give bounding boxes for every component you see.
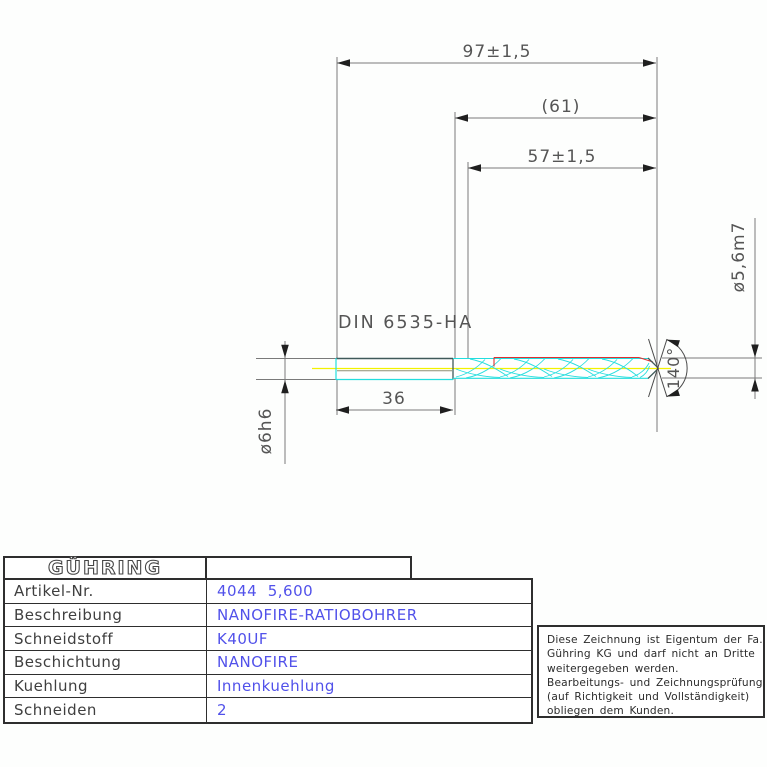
table-row: Beschichtung NANOFIRE <box>5 651 531 675</box>
row-label: Beschichtung <box>5 651 207 674</box>
drawing-page: { "drawing": { "standard_label": "DIN 65… <box>0 0 767 767</box>
title-block-header: GÜHRING <box>3 556 412 578</box>
dim-flute-length: 57±1,5 <box>528 147 597 167</box>
row-value: NANOFIRE-RATIOBOHRER <box>207 606 531 624</box>
note-line: Diese Zeichnung ist Eigentum der Fa. <box>547 633 763 647</box>
note-line: obliegen dem Kunden. <box>547 704 763 718</box>
dim-tip-diameter: ø5,6m7 <box>729 222 749 293</box>
dim-shank-length: 36 <box>382 389 406 409</box>
row-value: 4044 5,600 <box>207 582 531 600</box>
row-value: K40UF <box>207 630 531 648</box>
note-line: weitergegeben werden. <box>547 662 763 676</box>
article-table: Artikel-Nr. 4044 5,600 Beschreibung NANO… <box>3 578 533 724</box>
row-label: Schneidstoff <box>5 627 207 650</box>
table-row: Artikel-Nr. 4044 5,600 <box>5 580 531 604</box>
table-row: Beschreibung NANOFIRE-RATIOBOHRER <box>5 604 531 628</box>
table-row: Schneiden 2 <box>5 698 531 722</box>
row-value: NANOFIRE <box>207 653 531 671</box>
table-row: Schneidstoff K40UF <box>5 627 531 651</box>
brand-logo: GÜHRING <box>48 557 162 579</box>
note-line: (auf Richtigkeit und Vollständigkeit) <box>547 690 763 704</box>
note-line: Bearbeitungs- und Zeichnungsprüfung <box>547 676 763 690</box>
dim-ref-length: (61) <box>542 97 581 117</box>
table-row: Kuehlung Innenkuehlung <box>5 675 531 699</box>
row-value: 2 <box>207 701 531 719</box>
row-value: Innenkuehlung <box>207 677 531 695</box>
dim-point-angle: 140° <box>664 347 683 390</box>
ownership-note-box: Diese Zeichnung ist Eigentum der Fa. Güh… <box>537 625 765 718</box>
brand-empty-cell <box>207 558 410 578</box>
dim-overall-length: 97±1,5 <box>463 42 532 62</box>
brand-cell: GÜHRING <box>5 558 207 578</box>
row-label: Kuehlung <box>5 675 207 698</box>
row-label: Schneiden <box>5 698 207 722</box>
standard-label: DIN 6535-HA <box>338 313 473 333</box>
row-label: Beschreibung <box>5 604 207 627</box>
row-label: Artikel-Nr. <box>5 580 207 603</box>
note-line: Gühring KG und darf nicht an Dritte <box>547 647 763 661</box>
dim-shank-diameter: ø6h6 <box>256 408 276 455</box>
dimension-lines <box>256 57 762 464</box>
